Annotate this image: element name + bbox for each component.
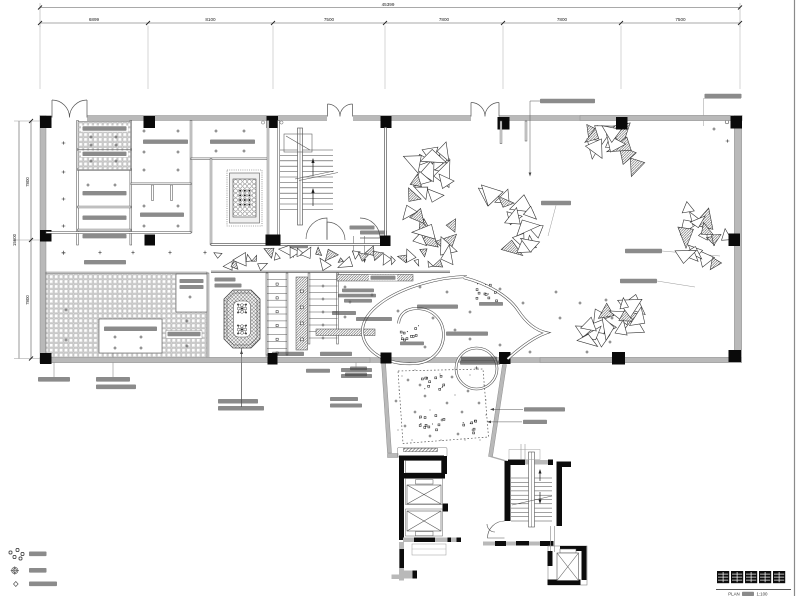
- svg-text:7500: 7500: [324, 17, 335, 22]
- svg-text:8100: 8100: [205, 17, 216, 22]
- svg-text:7500: 7500: [675, 17, 686, 22]
- svg-text:7800: 7800: [25, 177, 30, 187]
- svg-text:7800: 7800: [439, 17, 450, 22]
- svg-text:7800: 7800: [25, 295, 30, 305]
- svg-text:45399: 45399: [382, 2, 395, 7]
- svg-text:6899: 6899: [89, 17, 100, 22]
- svg-text:PLAN: PLAN: [728, 592, 739, 596]
- svg-text:15600: 15600: [12, 233, 17, 246]
- svg-text:7800: 7800: [557, 17, 568, 22]
- svg-text:1:100: 1:100: [757, 592, 769, 596]
